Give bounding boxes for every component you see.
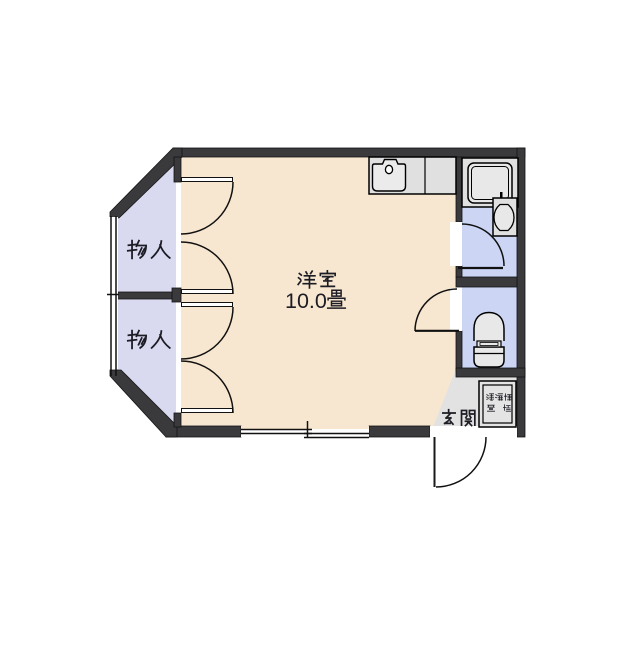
- svg-text:10.0: 10.0: [285, 289, 327, 313]
